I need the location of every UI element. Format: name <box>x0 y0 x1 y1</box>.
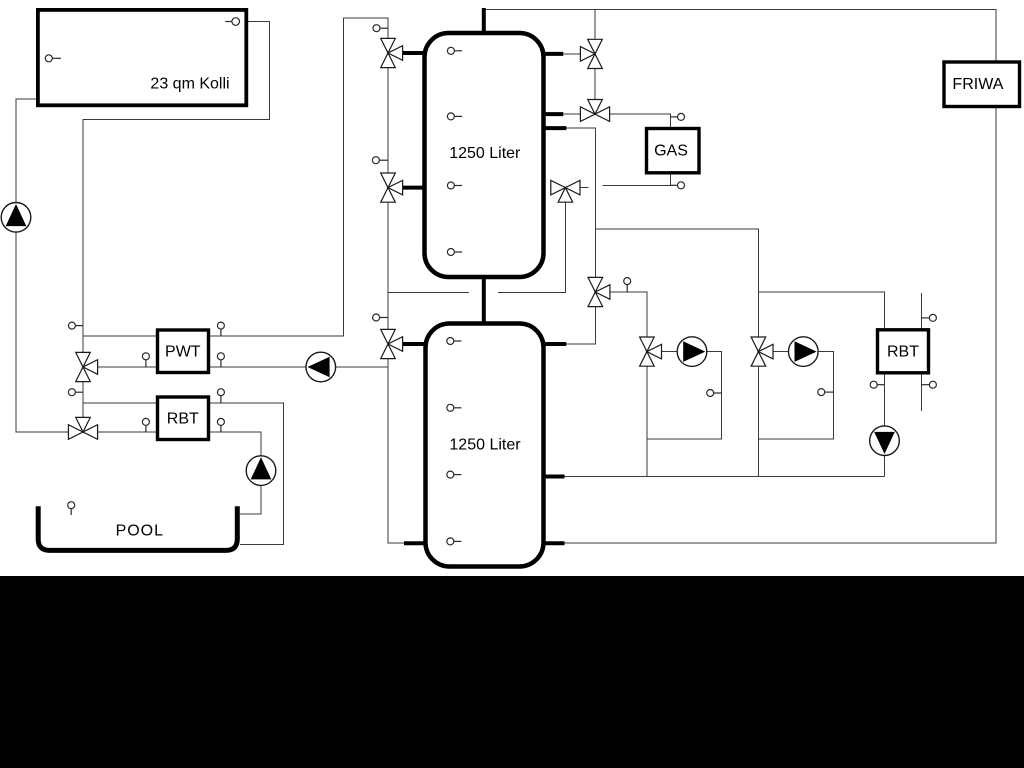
svg-text:1250 Liter: 1250 Liter <box>449 145 521 162</box>
svg-text:23 qm Kolli: 23 qm Kolli <box>150 76 229 93</box>
svg-text:FRIWA: FRIWA <box>952 76 1003 93</box>
svg-text:1250 Liter: 1250 Liter <box>449 437 521 454</box>
svg-text:GAS: GAS <box>654 143 688 160</box>
svg-text:RBT: RBT <box>887 343 919 360</box>
svg-text:POOL: POOL <box>116 523 164 540</box>
svg-text:PWT: PWT <box>165 344 201 361</box>
svg-text:RBT: RBT <box>167 411 199 428</box>
